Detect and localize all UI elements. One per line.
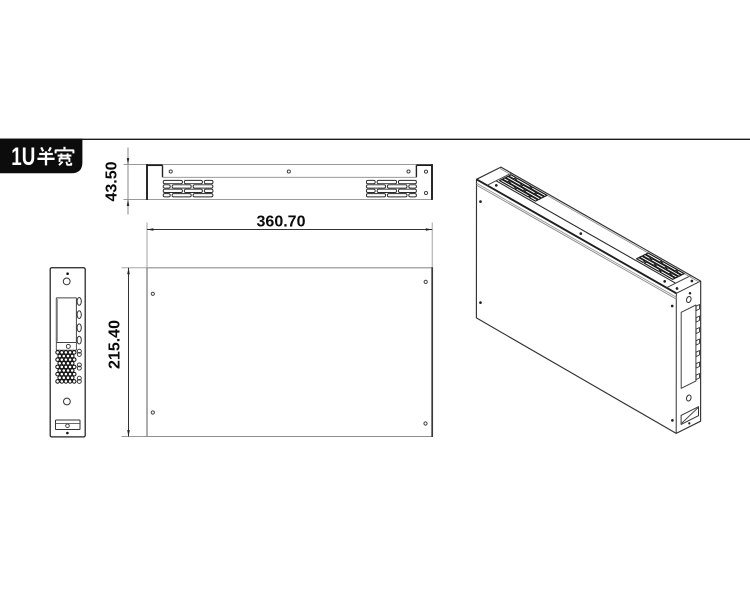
svg-text:43.50: 43.50 [103,161,120,201]
svg-text:1U: 1U [11,143,35,171]
svg-text:215.40: 215.40 [107,320,124,369]
svg-text:360.70: 360.70 [257,214,306,231]
